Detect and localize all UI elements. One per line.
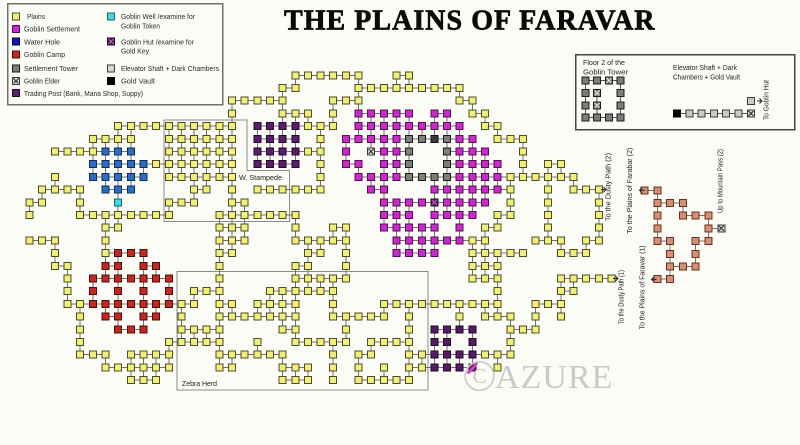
svg-text:To the Dusty Path (2): To the Dusty Path (2) — [604, 153, 613, 221]
svg-text:AZURE: AZURE — [495, 359, 613, 396]
svg-text:Goblin Tower: Goblin Tower — [583, 68, 628, 77]
svg-text:Settlement Tower: Settlement Tower — [24, 64, 78, 73]
svg-text:C: C — [472, 364, 486, 388]
svg-text:Floor 2 of the: Floor 2 of the — [583, 58, 625, 67]
svg-text:Zebra Herd: Zebra Herd — [182, 379, 217, 388]
svg-text:Goblin Well /examine for: Goblin Well /examine for — [121, 12, 195, 21]
svg-text:Water Hole: Water Hole — [24, 37, 60, 46]
svg-text:Up to Mountain Pass (2): Up to Mountain Pass (2) — [716, 149, 725, 213]
svg-text:To Goblin Hut: To Goblin Hut — [762, 79, 771, 120]
svg-text:Goblin Settlement: Goblin Settlement — [24, 25, 81, 34]
svg-text:W. Stampede: W. Stampede — [239, 173, 282, 182]
svg-text:To the Plains of Farabar (2): To the Plains of Farabar (2) — [625, 147, 634, 233]
svg-text:To the Dusty Path (1): To the Dusty Path (1) — [617, 270, 626, 324]
svg-text:Gold Vault: Gold Vault — [121, 77, 156, 86]
svg-text:Trading Post (Bank, Mana Shop,: Trading Post (Bank, Mana Shop, Suppy) — [24, 89, 143, 98]
svg-text:THE PLAINS OF FARAVAR: THE PLAINS OF FARAVAR — [284, 6, 656, 37]
svg-text:Plains: Plains — [27, 12, 45, 21]
svg-text:Goblin Camp: Goblin Camp — [24, 50, 65, 59]
svg-text:Elevator Shaft + Dark: Elevator Shaft + Dark — [673, 63, 737, 72]
svg-text:Goblin Hut /examine for: Goblin Hut /examine for — [121, 37, 194, 46]
svg-text:Elevator Shaft + Dark Chambers: Elevator Shaft + Dark Chambers — [121, 64, 219, 73]
svg-text:Goblin Token: Goblin Token — [121, 22, 160, 31]
svg-text:Goblin Elder: Goblin Elder — [24, 77, 60, 86]
svg-text:To the Plains of Faravar (1): To the Plains of Faravar (1) — [638, 245, 647, 329]
svg-text:Chambers + Gold Vault: Chambers + Gold Vault — [673, 73, 741, 82]
svg-text:Gold Key: Gold Key — [121, 47, 149, 56]
